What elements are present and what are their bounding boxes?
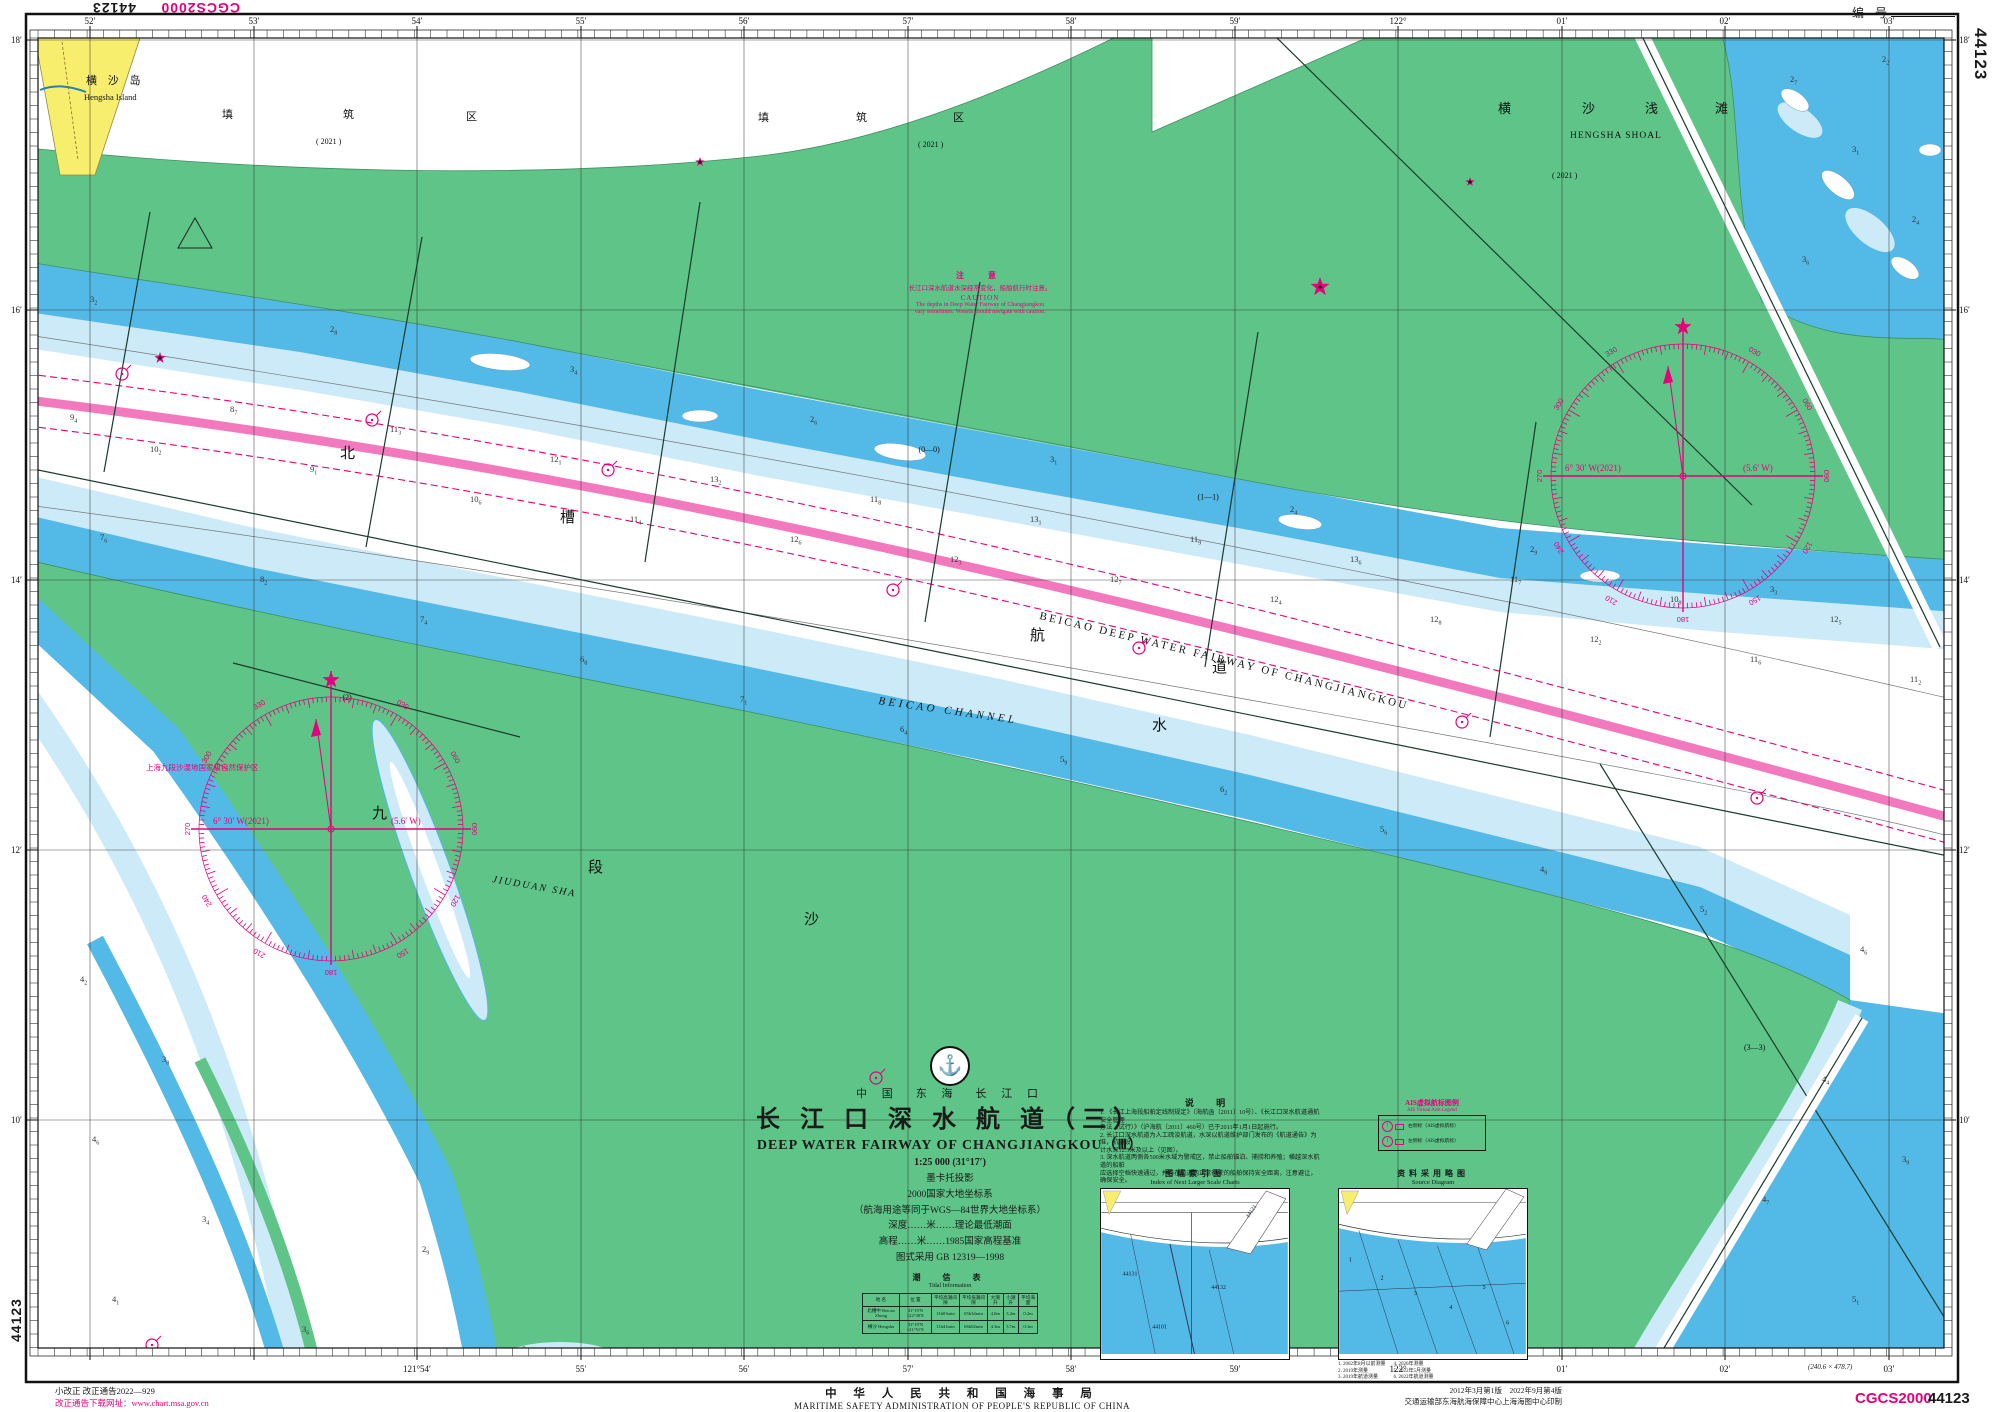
ais-virtual-buoy-icon: ! — [1382, 1135, 1404, 1147]
map-label: ( 2021 ) — [316, 137, 342, 146]
tide-col-header: 平均低潮间隙 — [959, 1293, 987, 1307]
svg-text:180: 180 — [325, 968, 338, 977]
tide-row: 北槽中 Beicao Zhong31°19′N 122°30′E11h03min… — [863, 1307, 1038, 1321]
note-line: 2. 长江口深水航道为人工疏浚航道，水深以航道维护部门发布的《航道通告》为准，航… — [1100, 1132, 1320, 1147]
longitude-label: 59′ — [1230, 1364, 1241, 1374]
caution-body-en2: vary sometimes. Vessels should navigate … — [872, 309, 1088, 316]
authority-cn: 中 华 人 民 共 和 国 海 事 局 — [662, 1385, 1262, 1401]
index-title-en: Index of Next Larger Scale Charts — [1100, 1179, 1290, 1186]
map-label: 水 — [1152, 717, 1167, 734]
source-footnotes-right: 4. 2020年测量5. 2022年5月测量6. 2022年航道测量 — [1394, 1362, 1434, 1382]
chart-number: 44123 — [92, 0, 136, 16]
tide-col-header: 平均高潮间隙 — [931, 1293, 959, 1307]
tide-table: 地 名位 置平均高潮间隙平均低潮间隙大潮升小潮升平均海面北槽中 Beicao Z… — [862, 1293, 1038, 1335]
chart-title-cn: 长 江 口 深 水 航 道（三） — [740, 1105, 1160, 1135]
chart-dimensions-note: (240.6 × 478.7) — [1808, 1363, 1852, 1371]
section-line-label: (1—1) — [1198, 493, 1220, 502]
datum-note-2: （航海用途等同于WGS—84世界大地坐标系） — [740, 1206, 1160, 1218]
anchor-icon: ⚓ — [938, 1054, 963, 1079]
source-diagram-block: 资料采用略图 Source Diagram 1 2 3 4 5 6 — [1338, 1168, 1528, 1382]
longitude-label: 58′ — [1066, 16, 1077, 26]
latitude-label: 12′ — [11, 845, 22, 855]
map-label: 横 沙 岛 — [86, 73, 145, 87]
index-title-cn: 图幅索引图 — [1100, 1168, 1290, 1179]
index-chart-label: 44132 — [1211, 1285, 1226, 1291]
source-zone-label: 2 — [1380, 1275, 1383, 1281]
annual-change-label: (5.6′ W) — [1743, 463, 1773, 473]
map-label: 北 — [340, 445, 355, 462]
caution-body-en1: The depths in Deep Water Fairway of Chan… — [872, 302, 1088, 309]
latitude-label: 14′ — [11, 575, 22, 585]
datum-note-1: 2000国家大地坐标系 — [740, 1190, 1160, 1202]
caution-body-cn: 长江口深水航道水深经常变化，船舶航行时注意。 — [872, 282, 1088, 292]
note-line: 1. 《长江上海段船舶定线制规定》（海航函〔2011〕10号）、《长江口深水航道… — [1100, 1109, 1320, 1124]
tide-title-cn: 潮 信 表 — [862, 1273, 1038, 1283]
right-margin-chart-number: 44123 — [1970, 28, 1990, 80]
svg-text:270: 270 — [183, 823, 192, 836]
tide-col-header: 地 名 — [863, 1293, 900, 1307]
map-label: 填 — [222, 107, 233, 121]
map-label: 槽 — [560, 509, 575, 526]
ais-virtual-buoy-icon: ! — [1382, 1120, 1404, 1132]
printer-note: 交通运输部东海航海保障中心上海海图中心印制 — [1405, 1396, 1563, 1407]
longitude-label: 01′ — [1557, 16, 1568, 26]
longitude-label: 57′ — [903, 16, 914, 26]
datum-label: CGCS2000 — [160, 0, 240, 16]
authority-en: MARITIME SAFETY ADMINISTRATION OF PEOPLE… — [662, 1401, 1262, 1411]
ais-legend: AIS虚拟航标图例 AIS Virtual Aids Legend ! 右侧标（… — [1378, 1098, 1486, 1151]
ais-legend-title-cn: AIS虚拟航标图例 — [1378, 1098, 1486, 1108]
edition-note: 2012年3月第1版 2022年9月第4版 — [1450, 1385, 1563, 1396]
latitude-label: 18′ — [1959, 35, 1970, 45]
map-label: ( 2021 ) — [1552, 171, 1578, 180]
map-label: 沙 — [804, 912, 819, 928]
source-zone-label: 4 — [1449, 1305, 1452, 1311]
ais-legend-row: ! 右侧标（AIS虚拟航标） — [1382, 1118, 1482, 1133]
source-footnotes: 1. 2002年8月以前测量2. 2019年测量3. 2019年航道测量 4. … — [1338, 1362, 1528, 1382]
index-chart-label: 44131 — [1123, 1271, 1138, 1277]
map-label: ( 2021 ) — [918, 140, 944, 149]
tide-col-header: 大潮升 — [988, 1293, 1004, 1307]
tide-row: 横沙 Hengsha31°19′N 121°51′E11h41min06h02m… — [863, 1320, 1038, 1334]
map-label: 填 — [758, 110, 769, 124]
ais-row-label: 右侧标（AIS虚拟航标） — [1408, 1122, 1459, 1129]
serial-number-field: 编 号 — [1852, 4, 1955, 21]
latitude-label: 18′ — [11, 35, 22, 45]
latitude-label: 16′ — [1959, 305, 1970, 315]
source-zone-label: 1 — [1349, 1258, 1352, 1264]
correction-note: 小改正 改正通告2022—929 — [55, 1385, 155, 1397]
tide-col-header: 位 置 — [899, 1293, 931, 1307]
caution-title-cn: 注 意 — [872, 270, 1088, 281]
longitude-label: 58′ — [1066, 1364, 1077, 1374]
longitude-label: 57′ — [903, 1364, 914, 1374]
source-title-en: Source Diagram — [1338, 1179, 1528, 1186]
longitude-label: 54′ — [412, 16, 423, 26]
svg-text:180: 180 — [1677, 615, 1690, 624]
bottom-right-datum: CGCS2000 — [1855, 1390, 1932, 1407]
title-block: ⚓ 中 国 东 海 长 江 口 长 江 口 深 水 航 道（三） DEEP WA… — [740, 1046, 1160, 1334]
source-footnotes-left: 1. 2002年8月以前测量2. 2019年测量3. 2019年航道测量 — [1338, 1362, 1386, 1382]
ais-legend-title-en: AIS Virtual Aids Legend — [1378, 1108, 1486, 1113]
section-line-label: (3—3) — [1744, 1043, 1766, 1052]
magnetic-variation-label: 6° 30′ W(2021) — [1565, 463, 1621, 473]
source-diagram-box: 1 2 3 4 5 6 — [1338, 1188, 1528, 1360]
index-chart-box: 44131 44132 44121 44101 — [1100, 1188, 1290, 1360]
ais-row-label: 左侧标（AIS虚拟航标） — [1408, 1137, 1459, 1144]
section-line-label: (0—0) — [919, 445, 941, 454]
map-label: 上海九段沙湿地国家级自然保护区 — [146, 762, 259, 772]
map-label: 九 — [372, 805, 387, 822]
longitude-label: 55′ — [576, 1364, 587, 1374]
svg-text:090: 090 — [1822, 470, 1831, 483]
latitude-label: 16′ — [11, 305, 22, 315]
longitude-label: 56′ — [739, 1364, 750, 1374]
source-zone-label: 6 — [1506, 1321, 1509, 1327]
map-label: 道 — [1212, 659, 1227, 676]
latitude-label: 10′ — [11, 1115, 22, 1125]
serial-label: 编 号 — [1852, 6, 1891, 20]
annual-change-label: (5.6′ W) — [391, 816, 421, 826]
latitude-label: 10′ — [1959, 1115, 1970, 1125]
svg-text:090: 090 — [470, 823, 479, 836]
tide-col-header: 平均海面 — [1019, 1293, 1038, 1307]
msa-logo: ⚓ — [930, 1046, 970, 1086]
index-chart-label: 44101 — [1152, 1324, 1167, 1330]
map-label: 浅 — [1645, 101, 1658, 116]
depth-note: 深度……米……理论最低潮面 — [740, 1221, 1160, 1233]
longitude-label: 53′ — [249, 16, 260, 26]
tide-information: 潮 信 表 Tidal Information 地 名位 置平均高潮间隙平均低潮… — [862, 1273, 1038, 1334]
ais-legend-row: ! 左侧标（AIS虚拟航标） — [1382, 1133, 1482, 1148]
source-mini-map: 1 2 3 4 5 6 — [1339, 1189, 1526, 1354]
chart-title-en: DEEP WATER FAIRWAY OF CHANGJIANGKOU（Ⅲ） — [740, 1137, 1160, 1155]
notes-title: 说 明 — [1100, 1096, 1320, 1109]
left-margin-chart-number: 44123 — [8, 1298, 24, 1342]
map-label: 区 — [953, 112, 964, 124]
height-note: 高程……米……1985国家高程基准 — [740, 1237, 1160, 1249]
caution-block: 注 意 长江口深水航道水深经常变化，船舶航行时注意。 CAUTION The d… — [872, 270, 1088, 316]
magnetic-variation-label: 6° 30′ W(2021) — [213, 816, 269, 826]
bottom-right-chart-number: 44123 — [1928, 1390, 1970, 1407]
longitude-label: 02′ — [1720, 1364, 1731, 1374]
tide-title-en: Tidal Information — [862, 1283, 1038, 1291]
longitude-label: 56′ — [739, 16, 750, 26]
top-left-rotated-imprint: CGCS2000 44123 — [40, 0, 240, 16]
index-mini-map: 44131 44132 44121 44101 — [1101, 1189, 1288, 1354]
source-zone-label: 3 — [1414, 1291, 1417, 1297]
longitude-label: 02′ — [1720, 16, 1731, 26]
tide-col-header: 小潮升 — [1003, 1293, 1019, 1307]
map-label: 筑 — [856, 110, 867, 124]
longitude-label: 59′ — [1230, 16, 1241, 26]
map-label: 横 — [1498, 101, 1511, 116]
region-line: 中 国 东 海 长 江 口 — [740, 1088, 1160, 1102]
publishing-authority: 中 华 人 民 共 和 国 海 事 局 MARITIME SAFETY ADMI… — [662, 1385, 1262, 1411]
longitude-label: 03′ — [1884, 1364, 1895, 1374]
longitude-label: 01′ — [1557, 1364, 1568, 1374]
map-label: 筑 — [343, 107, 354, 121]
longitude-label: 52′ — [85, 16, 96, 26]
longitude-label: 122° — [1389, 16, 1407, 26]
serial-blank-line — [1891, 6, 1955, 17]
projection-note: 墨卡托投影 — [740, 1174, 1160, 1186]
note-line: 办法（试行）》（沪海航〔2011〕460号）已于2011年1月1日起施行。 — [1100, 1124, 1320, 1132]
correction-download-note: 改正通告下载网址：www.chart.msa.gov.cn — [55, 1397, 209, 1409]
longitude-label: 55′ — [576, 16, 587, 26]
map-label: 区 — [466, 111, 477, 123]
ais-legend-box: ! 右侧标（AIS虚拟航标） ! 左侧标（AIS虚拟航标） — [1378, 1115, 1486, 1151]
source-title-cn: 资料采用略图 — [1338, 1168, 1528, 1179]
svg-text:270: 270 — [1535, 470, 1544, 483]
map-label: 段 — [588, 859, 603, 876]
nautical-chart-page: BEICAO DEEP WATER FAIRWAY OF CHANGJIANGK… — [0, 0, 2000, 1412]
chart-scale: 1:25 000 (31°17′) — [740, 1157, 1160, 1170]
longitude-label: 121°54′ — [403, 1364, 431, 1374]
source-zone-label: 5 — [1483, 1285, 1486, 1291]
map-label: 滩 — [1715, 101, 1728, 116]
latitude-label: 14′ — [1959, 575, 1970, 585]
map-label: 沙 — [1582, 101, 1595, 116]
map-label: 航 — [1030, 627, 1045, 644]
latitude-label: 12′ — [1959, 845, 1970, 855]
symbols-note: 图式采用 GB 12319—1998 — [740, 1253, 1160, 1265]
caution-title-en: CAUTION — [872, 294, 1088, 302]
map-label: Hengsha Island — [84, 92, 137, 102]
index-chart-block: 图幅索引图 Index of Next Larger Scale Charts … — [1100, 1168, 1290, 1360]
map-label: HENGSHA SHOAL — [1570, 131, 1662, 141]
